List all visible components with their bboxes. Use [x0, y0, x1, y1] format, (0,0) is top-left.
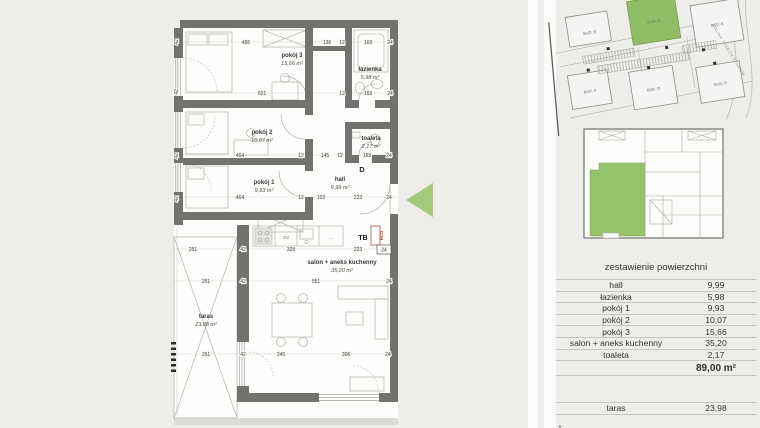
hob — [255, 228, 272, 244]
dimension-label: 24 — [387, 91, 393, 97]
area-row-label: pokój 3 — [556, 327, 676, 337]
dimension-label: 621 — [258, 91, 267, 97]
area-summary-panel: zestawienie powierzchni hall9,99łazienka… — [556, 262, 756, 428]
dimension-label: 12 — [298, 195, 304, 201]
tb-label: TB — [358, 235, 367, 242]
dimension-label: 136 — [323, 40, 332, 46]
dishwasher-label: ZM — [283, 235, 290, 240]
area-row-value: 9,93 — [676, 303, 756, 313]
area-table-row: pokój 315,66 — [556, 325, 756, 337]
room-area-label: 35,20 m² — [331, 268, 353, 274]
area-row-label: pokój 2 — [556, 315, 676, 325]
room-area-label: 9,93 m² — [255, 188, 274, 194]
rco-label: RCO — [379, 230, 384, 240]
room-name-label: pokój 2 — [251, 130, 273, 136]
area-table-row: hall9,99 — [556, 279, 756, 291]
dimension-label: 245 — [277, 352, 286, 358]
area-table-row: pokój 19,93 — [556, 302, 756, 314]
area-row-label: salon + aneks kuchenny — [556, 338, 676, 348]
room-name-label: hall — [335, 177, 346, 183]
building — [565, 11, 611, 47]
area-row-label: toaleta — [556, 350, 676, 360]
key-plan — [584, 129, 723, 238]
room-name-label: pokój 1 — [253, 180, 275, 186]
taras-row: taras 23,98 — [556, 402, 756, 415]
dimension-label: 251 — [189, 247, 198, 253]
dimension-label: 24 — [386, 195, 392, 201]
room-area-label: 23,98 m² — [194, 322, 217, 328]
room-area-label: 15,66 m² — [281, 61, 303, 67]
dimension-label: 223 — [354, 195, 363, 201]
boxed-dim-value: 24 — [381, 248, 387, 254]
site-boundary — [541, 22, 567, 136]
dimension-label: 223 — [354, 247, 363, 253]
taras-value: 23,98 — [676, 403, 756, 413]
dimension-label: 12 — [337, 153, 343, 159]
area-row-value: 9,99 — [676, 280, 756, 290]
area-table-row: toaleta2,17 — [556, 349, 756, 361]
area-table-row: łazienka5,98 — [556, 291, 756, 303]
bottom-slab-band — [174, 418, 398, 425]
room-area-label: 9,99 m² — [331, 185, 350, 191]
room-area-label: 5,98 m² — [361, 75, 380, 81]
site-plan: BUD. EBUD. CBUD. ABUD. FBUD. DBUD. B DOL… — [539, 0, 760, 148]
dimension-label: 169 — [363, 153, 372, 159]
area-row-label: hall — [556, 280, 676, 290]
dimension-label: 306 — [342, 352, 351, 358]
dimension-label: 42 — [240, 352, 246, 358]
area-row-value: 5,98 — [676, 292, 756, 302]
dimension-label: 24 — [386, 279, 392, 285]
floor-plan: pokój 315,66 m²łazienka5,98 m²pokój 210,… — [171, 20, 433, 425]
total-row: 89,00 m² — [556, 361, 756, 376]
room-name-label: toaleta — [361, 136, 381, 142]
dimension-label: 103 — [317, 195, 326, 201]
room-area-label: 2,17 m² — [361, 144, 381, 150]
room-name-label: łazienka — [358, 67, 382, 73]
dimension-label: 24 — [385, 352, 391, 358]
dimension-label: 42 — [240, 247, 246, 253]
dimension-label: 464 — [236, 153, 245, 159]
taras-label: taras — [556, 403, 676, 413]
dimension-label: 24 — [386, 153, 392, 159]
dimension-label: 42 — [174, 153, 180, 159]
dimension-label: 145 — [321, 153, 330, 159]
area-table-row: pokój 210,07 — [556, 314, 756, 326]
key-plan-highlight — [590, 163, 645, 236]
dimension-label: 485 — [242, 40, 251, 46]
room-name-label: taras — [199, 314, 214, 320]
dimension-label: 328 — [287, 247, 296, 253]
dimension-label: 464 — [236, 195, 245, 201]
entrance-arrow-icon — [406, 183, 433, 217]
area-row-value: 15,66 — [676, 327, 756, 337]
dimension-label: 251 — [202, 352, 211, 358]
dimension-label: 42 — [174, 89, 180, 95]
area-row-value: 2,17 — [676, 350, 756, 360]
page: pokój 315,66 m²łazienka5,98 m²pokój 210,… — [0, 0, 760, 428]
area-table-row: salon + aneks kuchenny35,20 — [556, 337, 756, 349]
room-area-label: 10,07 m² — [251, 138, 273, 144]
dimension-label: 169 — [364, 40, 373, 46]
room-name-label: pokój 3 — [281, 53, 303, 59]
area-row-value: 10,07 — [676, 315, 756, 325]
area-row-label: łazienka — [556, 292, 676, 302]
area-table-rows: hall9,99łazienka5,98pokój 19,93pokój 210… — [556, 279, 756, 361]
dimension-label: 12 — [339, 91, 345, 97]
dimension-label: 169 — [364, 91, 373, 97]
apartment-letter: D — [359, 165, 365, 174]
dimension-label: 24 — [387, 40, 393, 46]
dimension-label: 251 — [202, 279, 211, 285]
dimension-label: 42 — [240, 279, 246, 285]
kitchen-dots: ··· — [329, 236, 334, 242]
dimension-label: 12 — [339, 40, 345, 46]
footnote-asterisk: * — [558, 424, 756, 428]
area-summary-title: zestawienie powierzchni — [556, 262, 756, 273]
total-area-value: 89,00 m² — [676, 363, 756, 374]
dimension-label: 42 — [174, 196, 180, 202]
dimension-label: 12 — [298, 153, 304, 159]
room-name-label: salon + aneks kuchenny — [307, 260, 377, 266]
area-row-value: 35,20 — [676, 338, 756, 348]
dimension-label: 42 — [174, 39, 180, 45]
dimension-label: 551 — [312, 279, 321, 285]
area-row-label: pokój 1 — [556, 303, 676, 313]
